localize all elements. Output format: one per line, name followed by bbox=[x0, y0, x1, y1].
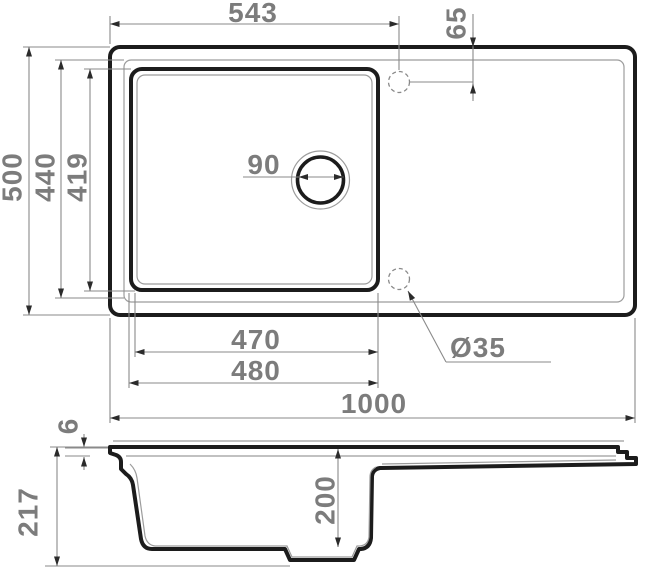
drawing-page: 543 65 500 440 419 90 470 bbox=[0, 0, 645, 570]
dim-label-217: 217 bbox=[13, 487, 44, 537]
sink-technical-drawing: 543 65 500 440 419 90 470 bbox=[0, 0, 645, 570]
dim-label-440: 440 bbox=[30, 152, 61, 202]
dim-label-470: 470 bbox=[231, 324, 281, 355]
dim-label-419: 419 bbox=[62, 152, 93, 202]
dim-1000: 1000 bbox=[110, 318, 635, 423]
dim-label-1000: 1000 bbox=[341, 388, 407, 419]
dim-label-200: 200 bbox=[310, 475, 341, 525]
section-profile bbox=[110, 447, 636, 560]
dim-label-500: 500 bbox=[0, 152, 28, 202]
dim-label-480: 480 bbox=[231, 355, 281, 386]
dim-label-65: 65 bbox=[441, 6, 472, 39]
tap-hole-bottom bbox=[389, 269, 410, 290]
tap-hole-top bbox=[389, 72, 410, 93]
dim-label-90: 90 bbox=[247, 149, 280, 180]
top-view bbox=[110, 47, 635, 315]
dim-label-tap-diameter: Ø35 bbox=[450, 332, 506, 363]
dim-label-6: 6 bbox=[53, 418, 84, 435]
dim-label-543: 543 bbox=[228, 0, 278, 28]
dim-6: 6 bbox=[53, 418, 109, 470]
side-view bbox=[110, 441, 636, 560]
